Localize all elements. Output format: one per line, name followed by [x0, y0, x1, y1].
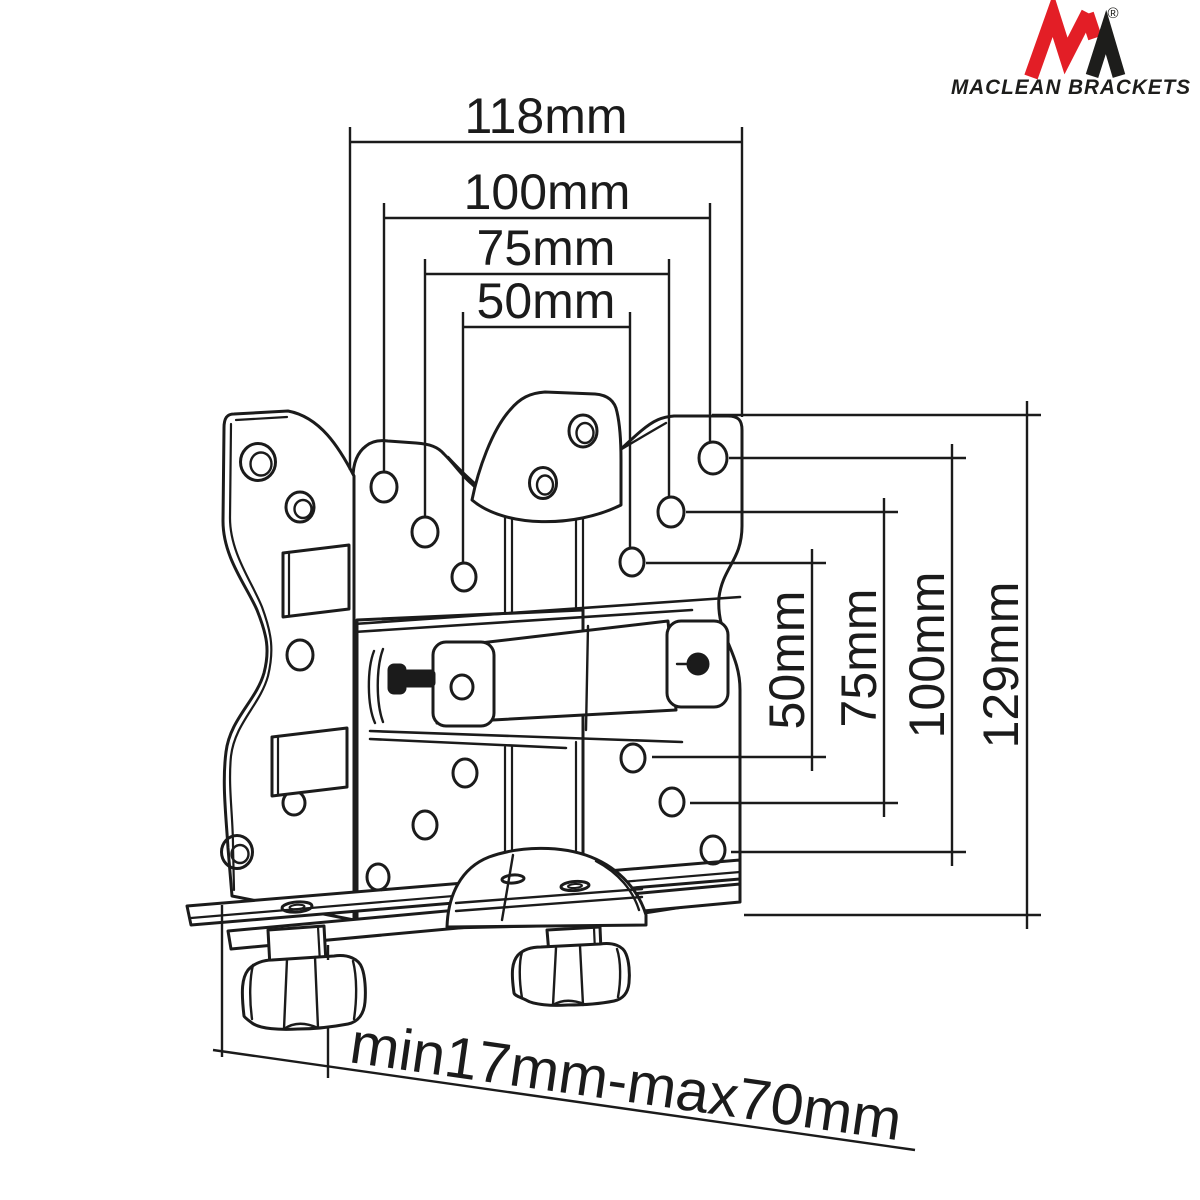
front-ear-outline [472, 392, 621, 522]
plate-slot [283, 545, 349, 617]
bracket-technical-diagram: 118mm 100mm 75mm 50mm 50mm [0, 0, 1200, 1200]
brand-name: MACLEAN BRACKETS [951, 76, 1191, 99]
maclean-m-icon [1031, 13, 1119, 77]
dimension-label: 75mm [477, 220, 616, 276]
dimension-label: 118mm [464, 88, 627, 144]
knob-body [512, 943, 629, 1005]
knob-body [242, 956, 365, 1030]
left-plate-outline [223, 411, 354, 920]
dimension-label: min17mm-max70mm [346, 1011, 906, 1154]
clamp-pin [688, 654, 708, 674]
brand-logo: ® MACLEAN BRACKETS [951, 5, 1191, 99]
front-adapter-ear [472, 392, 621, 522]
dimension-label: 100mm [464, 164, 631, 220]
registered-trademark: ® [1107, 5, 1118, 22]
logo-m-black-chevron [1092, 32, 1119, 76]
technical-drawing-page: 118mm 100mm 75mm 50mm 50mm [0, 0, 1200, 1200]
plate-slot [272, 728, 347, 796]
dimension-label: 100mm [899, 572, 955, 739]
clamp-end-plate-left [433, 642, 494, 726]
logo-m-red-zigzag [1031, 13, 1088, 77]
logo-m-red-cap [1087, 14, 1095, 38]
dimension-label: 75mm [831, 589, 887, 728]
dimension-label: 50mm [477, 273, 616, 329]
adjust-screw-stem [404, 671, 434, 686]
back-left-plate [222, 411, 355, 920]
thumb-screw-right [512, 927, 629, 1005]
dimension-label: 50mm [759, 591, 815, 730]
dimension-label: 129mm [973, 582, 1029, 749]
bracket-drawing [187, 392, 742, 1029]
